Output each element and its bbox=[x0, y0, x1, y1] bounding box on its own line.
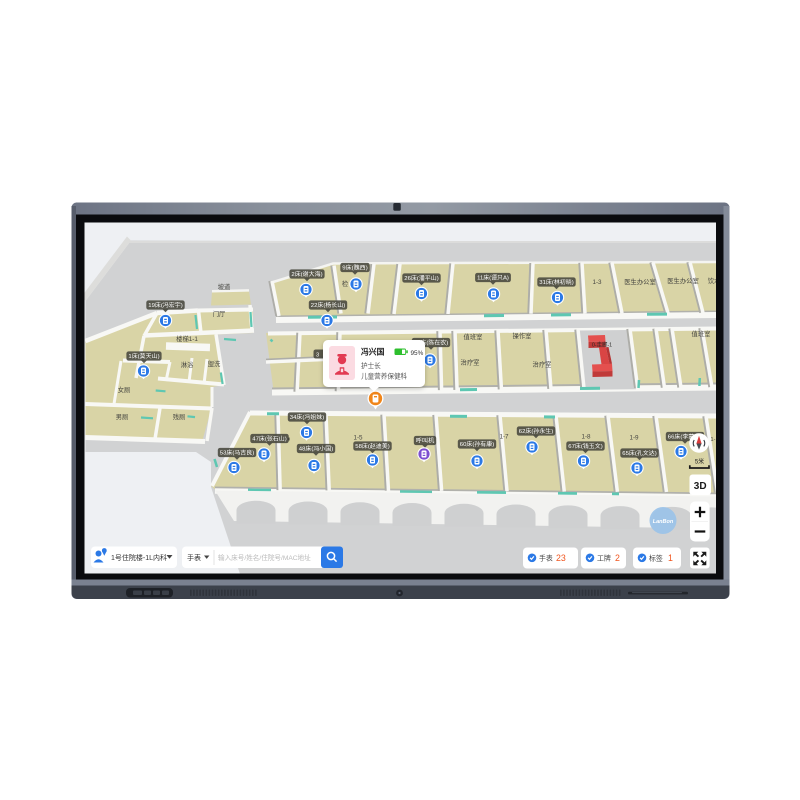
svg-text:楼梯1-1: 楼梯1-1 bbox=[176, 334, 198, 343]
svg-text:1号住院楼-1L内科: 1号住院楼-1L内科 bbox=[111, 553, 167, 562]
svg-text:残厕: 残厕 bbox=[173, 412, 186, 421]
svg-text:坡道: 坡道 bbox=[218, 282, 231, 291]
svg-text:1床(莫天山): 1床(莫天山) bbox=[128, 352, 159, 360]
svg-text:工牌: 工牌 bbox=[597, 554, 611, 563]
svg-text:1-3: 1-3 bbox=[592, 279, 602, 286]
svg-text:门厅: 门厅 bbox=[213, 309, 226, 318]
svg-text:67床(钱玉文): 67床(钱玉文) bbox=[568, 442, 602, 450]
svg-text:医生办公室: 医生办公室 bbox=[667, 276, 698, 285]
svg-text:治疗室: 治疗室 bbox=[533, 360, 552, 369]
svg-text:95%: 95% bbox=[411, 350, 424, 357]
svg-text:手表: 手表 bbox=[187, 553, 201, 562]
svg-text:LanBon: LanBon bbox=[653, 519, 674, 525]
svg-text:1: 1 bbox=[668, 553, 673, 563]
svg-text:48床(冯小国): 48床(冯小国) bbox=[299, 445, 333, 453]
svg-text:5米: 5米 bbox=[695, 458, 704, 466]
svg-text:1-7: 1-7 bbox=[499, 434, 509, 441]
svg-text:9床(魏西): 9床(魏西) bbox=[342, 264, 368, 272]
svg-text:2: 2 bbox=[615, 553, 620, 563]
svg-text:65床(孔文达): 65床(孔文达) bbox=[622, 449, 656, 457]
svg-text:操作室: 操作室 bbox=[513, 331, 532, 340]
svg-text:23: 23 bbox=[556, 553, 566, 563]
svg-text:31床(林初晓): 31床(林初晓) bbox=[539, 278, 573, 286]
svg-text:1-9: 1-9 bbox=[629, 435, 639, 442]
svg-text:治疗室: 治疗室 bbox=[461, 358, 480, 367]
svg-text:呼叫机: 呼叫机 bbox=[416, 437, 435, 445]
svg-text:1-: 1- bbox=[711, 437, 716, 443]
svg-text:47床(张石山): 47床(张石山) bbox=[252, 435, 286, 443]
svg-text:1-8: 1-8 bbox=[581, 434, 591, 441]
svg-text:儿童营养保健科: 儿童营养保健科 bbox=[361, 372, 408, 381]
svg-text:26床(潘平山): 26床(潘平山) bbox=[404, 274, 438, 282]
svg-text:22床(杨长山): 22床(杨长山) bbox=[311, 301, 345, 309]
svg-text:0-走廊-1: 0-走廊-1 bbox=[592, 341, 612, 349]
svg-text:值班室: 值班室 bbox=[692, 329, 711, 338]
svg-text:医生办公室: 医生办公室 bbox=[624, 277, 655, 286]
svg-text:值班室: 值班室 bbox=[464, 332, 483, 341]
svg-text:53床(马吉良): 53床(马吉良) bbox=[220, 449, 254, 457]
svg-text:盥洗: 盥洗 bbox=[208, 359, 221, 368]
svg-text:3: 3 bbox=[316, 352, 319, 358]
svg-text:11床(谭只A): 11床(谭只A) bbox=[477, 274, 509, 282]
svg-text:淋浴: 淋浴 bbox=[181, 360, 194, 369]
svg-text:58床(赵迪美): 58床(赵迪美) bbox=[355, 442, 389, 450]
svg-text:2床(谢大海): 2床(谢大海) bbox=[291, 270, 322, 278]
svg-text:冯兴国: 冯兴国 bbox=[361, 347, 385, 357]
svg-text:60床(孙有康): 60床(孙有康) bbox=[460, 440, 494, 448]
svg-text:输入床号/姓名/住院号/MAC地址: 输入床号/姓名/住院号/MAC地址 bbox=[218, 553, 311, 562]
svg-text:检: 检 bbox=[342, 279, 349, 288]
svg-text:女厕: 女厕 bbox=[118, 385, 131, 394]
svg-text:标签: 标签 bbox=[649, 554, 663, 563]
svg-text:3D: 3D bbox=[694, 481, 707, 492]
svg-text:34床(冯姐妹): 34床(冯姐妹) bbox=[290, 413, 324, 421]
svg-text:手表: 手表 bbox=[539, 554, 553, 563]
svg-text:62床(孙永生): 62床(孙永生) bbox=[519, 427, 553, 435]
svg-text:护士长: 护士长 bbox=[361, 361, 381, 370]
svg-text:男厕: 男厕 bbox=[116, 413, 129, 421]
svg-text:1-5: 1-5 bbox=[353, 435, 363, 442]
svg-text:19床(冯宏宇): 19床(冯宏宇) bbox=[148, 301, 182, 309]
